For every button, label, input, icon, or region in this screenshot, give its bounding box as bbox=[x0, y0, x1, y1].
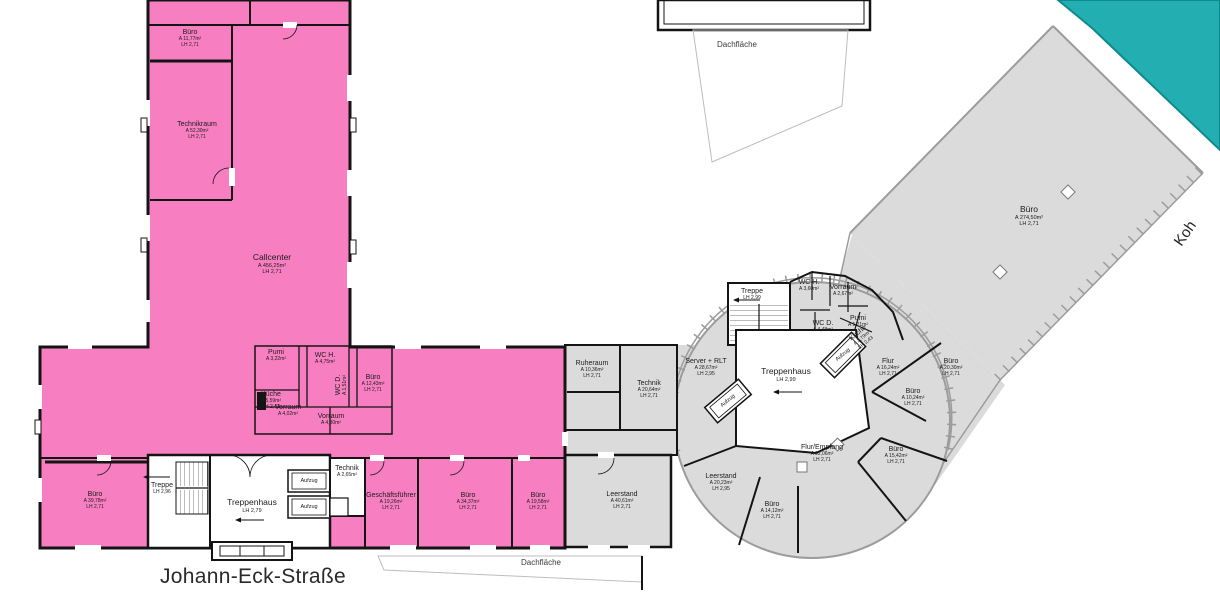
lift-label: Aufzug bbox=[300, 504, 317, 510]
floor-plan: BüroA 11,77m²LH 2,71 TechnikraumA 52,30m… bbox=[0, 0, 1220, 602]
room-label: TreppenhausLH 2,99 bbox=[761, 367, 811, 383]
room-label: TreppenhausLH 2,79 bbox=[227, 498, 277, 514]
roof-label-bottom: Dachfläche bbox=[521, 558, 561, 567]
room-label: WC H.A 4,75m² bbox=[315, 352, 336, 366]
room-label: BüroA 19,58m²LH 2,71 bbox=[527, 492, 550, 512]
room-label: VorraumA 4,02m² bbox=[275, 404, 301, 418]
street-label: Johann-Eck-Straße bbox=[160, 565, 346, 589]
room-label: GeschäftsführerA 19,26m²LH 2,71 bbox=[366, 492, 416, 512]
room-label: LeerstandA 40,61m²LH 2,71 bbox=[606, 491, 637, 511]
roof-label-top: Dachfläche bbox=[717, 40, 757, 49]
room-label: BüroA 11,77m²LH 2,71 bbox=[179, 29, 201, 49]
room-label: WC D.A 4,48m² bbox=[813, 320, 834, 334]
room-label: CallcenterA 456,25m²LH 2,71 bbox=[253, 253, 291, 275]
room-label: WC D.A 1,51m² bbox=[335, 375, 349, 396]
room-label: VorraumA 2,67m² bbox=[830, 284, 856, 298]
room-label: VorraumA 4,30m² bbox=[318, 413, 344, 427]
roof-outline-top bbox=[658, 0, 870, 162]
lift-label: Aufzug bbox=[300, 478, 317, 484]
roof-outline-bottom bbox=[378, 556, 642, 590]
room-label: Flur/EmpfangA 92,06m²LH 2,71 bbox=[801, 444, 843, 464]
room-label: Server + RLTA 28,67m²LH 2,95 bbox=[685, 358, 726, 378]
room-label: FlurA 16,24m²LH 2,71 bbox=[877, 358, 900, 378]
room-label: TreppeLH 2,99 bbox=[741, 288, 763, 302]
room-label: TechnikA 20,64m²LH 2,71 bbox=[637, 380, 661, 400]
floor-plan-drawing bbox=[0, 0, 1220, 602]
room-label: BüroA 15,42m²LH 2,71 bbox=[885, 446, 908, 466]
room-label: PumiA 3,22m² bbox=[266, 349, 286, 363]
room-label: TechnikA 2,65m² bbox=[335, 465, 359, 479]
room-label: BüroA 14,12m²LH 2,71 bbox=[761, 501, 784, 521]
room-label: WC H.A 3,60m² bbox=[799, 279, 820, 293]
room-label: BüroA 39,78m²LH 2,71 bbox=[84, 491, 107, 511]
room-label: BüroA 12,43m²LH 2,71 bbox=[362, 374, 385, 394]
room-label: RuheraumA 10,36m²LH 2,71 bbox=[576, 360, 609, 380]
room-label: TreppeLH 2,96 bbox=[151, 482, 173, 496]
room-label: BüroA 274,50m²LH 2,71 bbox=[1015, 205, 1043, 227]
room-label: TechnikraumA 52,30m²LH 2,71 bbox=[177, 121, 217, 141]
room-label: BüroA 20,30m²LH 2,71 bbox=[940, 358, 963, 378]
room-label: LeerstandA 20,23m²LH 2,95 bbox=[705, 473, 736, 493]
room-label: BüroA 10,24m²LH 2,71 bbox=[902, 388, 925, 408]
room-label: BüroA 34,37m²LH 2,71 bbox=[457, 492, 480, 512]
